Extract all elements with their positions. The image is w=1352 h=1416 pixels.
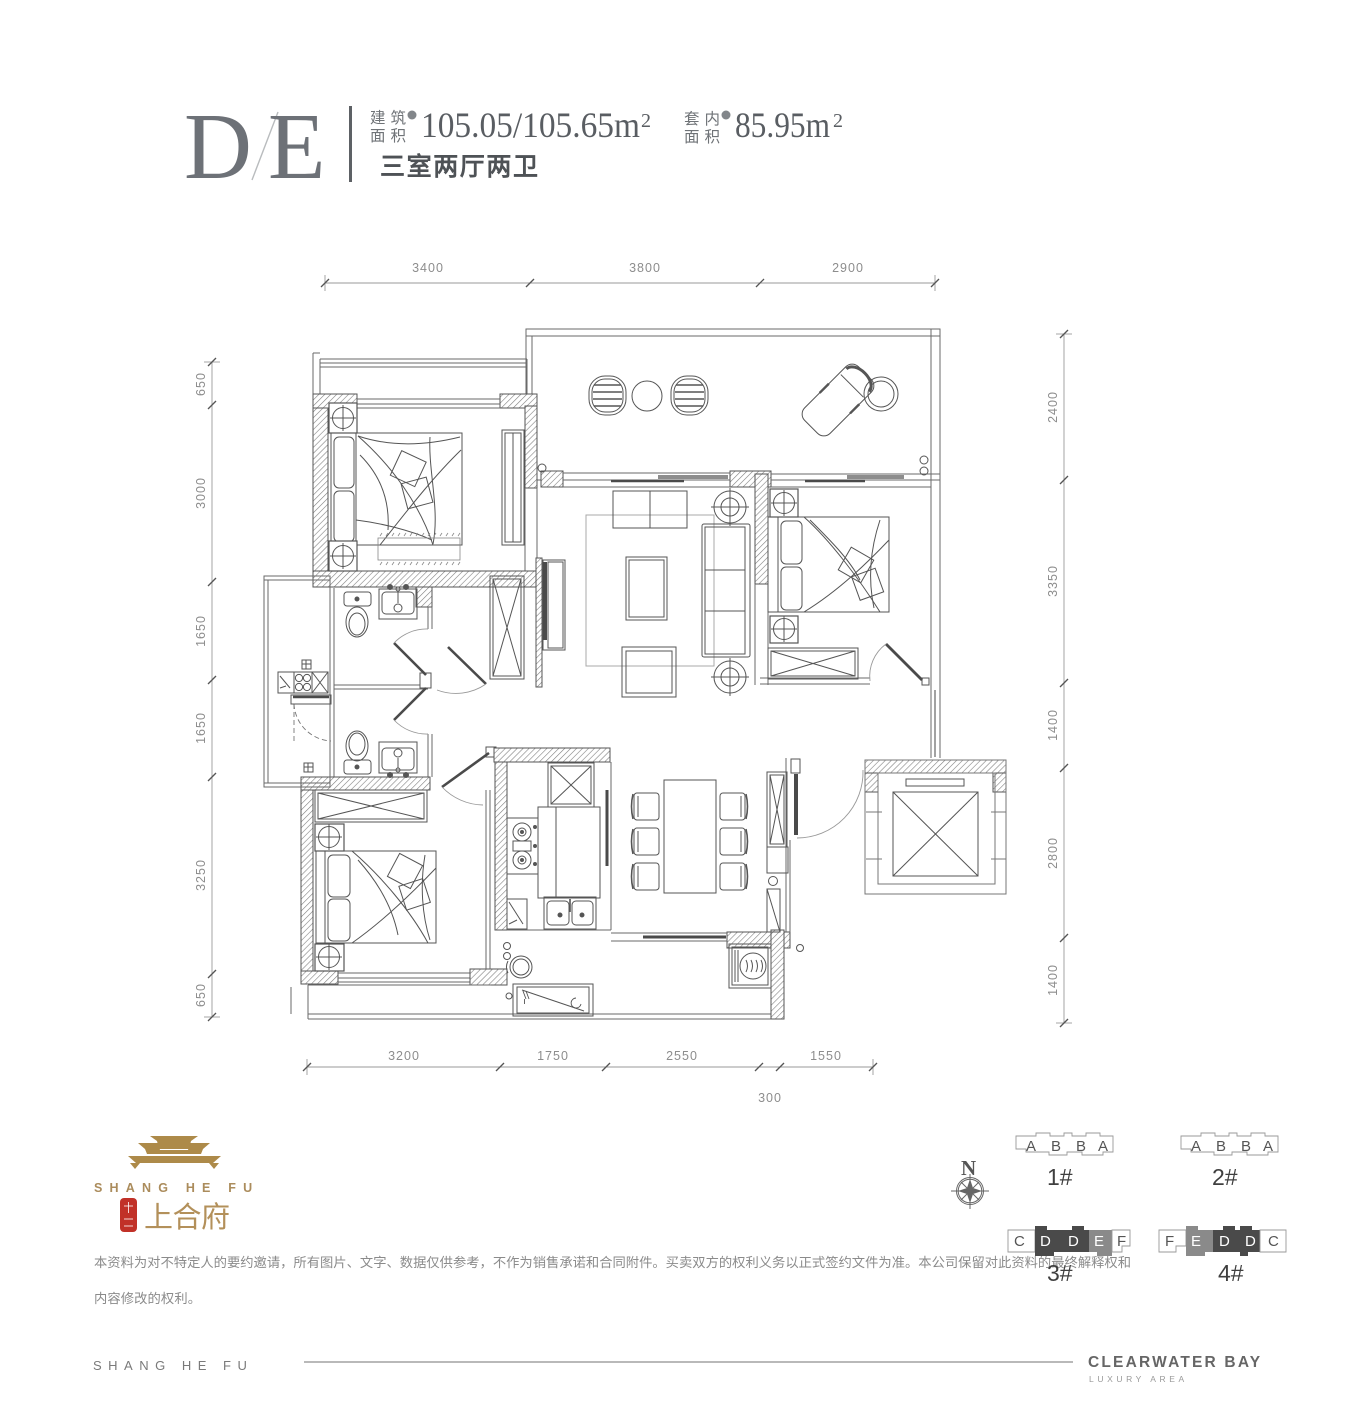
svg-text:650: 650 bbox=[194, 983, 208, 1007]
svg-text:1#: 1# bbox=[1047, 1164, 1073, 1190]
svg-text:2400: 2400 bbox=[1046, 391, 1060, 423]
svg-text:1400: 1400 bbox=[1046, 709, 1060, 741]
svg-text:E: E bbox=[1191, 1233, 1201, 1250]
svg-text:SHANG HE FU: SHANG HE FU bbox=[94, 1181, 259, 1195]
svg-text:E: E bbox=[1094, 1233, 1104, 1250]
svg-text:D: D bbox=[184, 95, 252, 199]
svg-text:E: E bbox=[268, 95, 325, 199]
svg-text:三室两厅两卫: 三室两厅两卫 bbox=[380, 152, 538, 181]
svg-text:2550: 2550 bbox=[666, 1049, 698, 1063]
svg-text:1750: 1750 bbox=[537, 1049, 569, 1063]
svg-text:D: D bbox=[1219, 1233, 1230, 1250]
svg-text:4#: 4# bbox=[1218, 1260, 1244, 1286]
svg-text:2800: 2800 bbox=[1046, 837, 1060, 869]
svg-text:C: C bbox=[1268, 1233, 1279, 1250]
svg-text:3200: 3200 bbox=[388, 1049, 420, 1063]
svg-text:300: 300 bbox=[758, 1091, 782, 1105]
svg-text:N: N bbox=[961, 1156, 976, 1180]
svg-text:2: 2 bbox=[641, 110, 651, 132]
svg-text:A: A bbox=[1191, 1138, 1201, 1155]
svg-text:1650: 1650 bbox=[194, 615, 208, 647]
svg-text:D: D bbox=[1068, 1233, 1079, 1250]
svg-text:105.05/105.65m: 105.05/105.65m bbox=[421, 105, 640, 145]
svg-text:2: 2 bbox=[833, 110, 843, 132]
svg-text:3#: 3# bbox=[1047, 1260, 1073, 1286]
svg-text:3800: 3800 bbox=[629, 261, 661, 275]
svg-text:D: D bbox=[1245, 1233, 1256, 1250]
svg-text:上合府: 上合府 bbox=[144, 1201, 230, 1234]
svg-text:LUXURY AREA: LUXURY AREA bbox=[1089, 1374, 1188, 1384]
svg-text:3000: 3000 bbox=[194, 477, 208, 509]
svg-text:1650: 1650 bbox=[194, 712, 208, 744]
svg-text:SHANG HE FU: SHANG HE FU bbox=[93, 1358, 253, 1373]
svg-text:D: D bbox=[1040, 1233, 1051, 1250]
svg-text:B: B bbox=[1051, 1138, 1061, 1155]
svg-text:1400: 1400 bbox=[1046, 964, 1060, 996]
svg-text:A: A bbox=[1026, 1138, 1036, 1155]
svg-text:A: A bbox=[1098, 1138, 1108, 1155]
svg-text:A: A bbox=[1263, 1138, 1273, 1155]
svg-text:650: 650 bbox=[194, 372, 208, 396]
svg-text:1550: 1550 bbox=[810, 1049, 842, 1063]
svg-text:内容修改的权利。: 内容修改的权利。 bbox=[94, 1290, 201, 1306]
svg-text:CLEARWATER BAY: CLEARWATER BAY bbox=[1088, 1354, 1262, 1371]
svg-text:B: B bbox=[1076, 1138, 1086, 1155]
svg-text:F: F bbox=[1165, 1233, 1174, 1250]
svg-text:85.95m: 85.95m bbox=[735, 105, 830, 145]
svg-text:本资料为对不特定人的要约邀请，所有图片、文字、数据仅供参考，: 本资料为对不特定人的要约邀请，所有图片、文字、数据仅供参考，不作为销售承诺和合同… bbox=[94, 1254, 1131, 1270]
svg-text:3400: 3400 bbox=[412, 261, 444, 275]
svg-text:2900: 2900 bbox=[832, 261, 864, 275]
svg-text:3250: 3250 bbox=[194, 859, 208, 891]
svg-text:C: C bbox=[1014, 1233, 1025, 1250]
svg-text:F: F bbox=[1117, 1233, 1126, 1250]
svg-text:B: B bbox=[1241, 1138, 1251, 1155]
svg-text:B: B bbox=[1216, 1138, 1226, 1155]
svg-text:3350: 3350 bbox=[1046, 565, 1060, 597]
svg-text:2#: 2# bbox=[1212, 1164, 1238, 1190]
